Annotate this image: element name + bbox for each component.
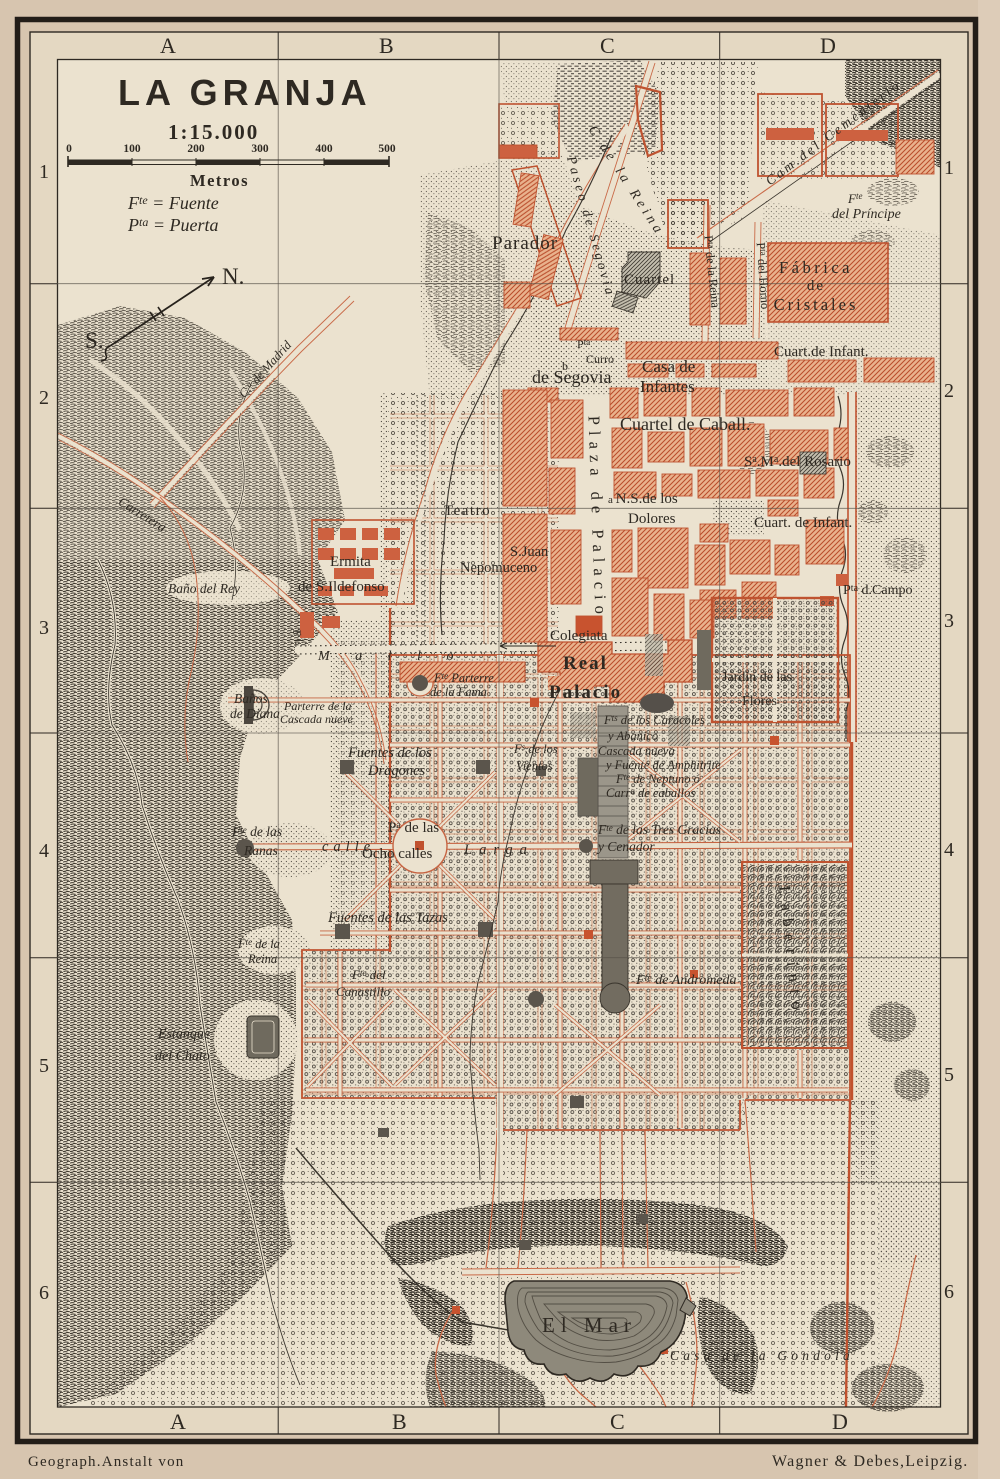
svg-text:Flores: Flores (742, 694, 777, 709)
svg-text:Metros: Metros (190, 171, 249, 190)
svg-text:D: D (832, 1409, 848, 1434)
svg-text:Jardin de las: Jardin de las (722, 670, 792, 685)
svg-text:Infantes: Infantes (640, 377, 695, 396)
svg-text:Cascada nueva: Cascada nueva (598, 744, 675, 758)
svg-text:de Diana: de Diana (230, 706, 280, 721)
svg-text:Fte de las Tres Gracias: Fte de las Tres Gracias (597, 822, 721, 837)
svg-text:del Príncipe: del Príncipe (832, 207, 901, 222)
svg-text:Vientos: Vientos (516, 759, 553, 773)
svg-text:Fts de los Caracoles: Fts de los Caracoles (603, 713, 705, 727)
svg-text:400: 400 (315, 143, 333, 155)
svg-text:Fte de las: Fte de las (231, 824, 282, 839)
svg-text:Fte del: Fte del (351, 967, 386, 982)
svg-text:a N.S.de los: a N.S.de los (608, 491, 678, 507)
svg-text:y Cenador: y Cenador (596, 839, 655, 854)
svg-text:300: 300 (251, 143, 269, 155)
svg-text:LA GRANJA: LA GRANJA (118, 72, 372, 113)
svg-text:Fte de la: Fte de la (237, 937, 280, 951)
svg-text:Palacio: Palacio (549, 682, 622, 703)
svg-text:y Abanico: y Abanico (606, 729, 658, 743)
svg-text:Larga: Larga (463, 842, 534, 858)
svg-text:Cuart. de Infant.: Cuart. de Infant. (754, 515, 852, 531)
svg-text:Fuentes de las Tazas: Fuentes de las Tazas (327, 910, 448, 926)
svg-text:200: 200 (187, 143, 205, 155)
svg-text:100: 100 (123, 143, 141, 155)
svg-text:de Segovia: de Segovia (532, 367, 611, 387)
svg-text:C: C (600, 33, 615, 58)
svg-text:6: 6 (39, 1282, 49, 1304)
svg-text:Dolores: Dolores (628, 511, 676, 527)
svg-text:1: 1 (39, 161, 49, 183)
svg-text:Parterre de la: Parterre de la (283, 699, 352, 713)
svg-text:2: 2 (39, 387, 49, 409)
svg-text:3: 3 (39, 617, 49, 639)
svg-text:S.Juan: S.Juan (510, 544, 549, 560)
svg-text:0: 0 (66, 143, 72, 155)
svg-text:A: A (160, 33, 176, 58)
svg-text:A: A (170, 1409, 186, 1434)
svg-text:Fuentes de los: Fuentes de los (347, 745, 432, 761)
svg-text:D: D (820, 33, 836, 58)
svg-text:Estanque: Estanque (157, 1027, 210, 1042)
svg-text:y Fuente de Amphitrite: y Fuente de Amphitrite (604, 758, 721, 772)
svg-text:Sa.Ma.del Rosario: Sa.Ma.del Rosario (744, 454, 851, 470)
svg-text:Cristales: Cristales (774, 295, 859, 314)
svg-text:6: 6 (944, 1281, 954, 1303)
svg-text:500: 500 (378, 143, 396, 155)
svg-text:Curro: Curro (586, 352, 614, 366)
svg-text:de: de (807, 278, 825, 294)
svg-text:Pa de las: Pa de las (388, 820, 439, 836)
svg-text:B: B (379, 33, 394, 58)
svg-text:Reina: Reina (247, 952, 277, 966)
svg-text:Geograph.Anstalt von: Geograph.Anstalt von (28, 1454, 184, 1470)
svg-text:C: C (610, 1409, 625, 1434)
svg-text:Dragones: Dragones (367, 763, 426, 779)
svg-text:2: 2 (944, 380, 954, 402)
svg-text:N.: N. (222, 264, 244, 289)
svg-text:del Chato: del Chato (155, 1049, 210, 1064)
svg-text:4: 4 (39, 840, 49, 862)
svg-text:5: 5 (944, 1064, 954, 1086)
svg-text:Ermita: Ermita (330, 554, 371, 570)
svg-text:5: 5 (39, 1055, 49, 1077)
svg-text:Teatro: Teatro (444, 503, 491, 519)
svg-text:Canastillo: Canastillo (336, 984, 391, 999)
svg-text:Baños: Baños (234, 691, 268, 706)
svg-text:Parador: Parador (492, 233, 558, 254)
svg-text:4: 4 (944, 839, 954, 861)
svg-text:Real: Real (563, 653, 608, 674)
svg-text:Nepomuceno: Nepomuceno (460, 560, 537, 576)
svg-text:de S.Ildefonso: de S.Ildefonso (298, 579, 385, 595)
svg-text:Casa de: Casa de (642, 357, 695, 376)
svg-text:Carra de caballos: Carra de caballos (606, 786, 695, 800)
svg-text:Cuartel: Cuartel (624, 272, 675, 288)
svg-text:B: B (392, 1409, 407, 1434)
svg-text:Cascada nueve: Cascada nueve (280, 712, 354, 726)
svg-text:Ocho calles: Ocho calles (362, 846, 433, 862)
svg-text:de la Fama: de la Fama (430, 685, 487, 699)
svg-text:Cuartel de Caball.: Cuartel de Caball. (620, 414, 750, 434)
svg-text:Casa de la Gondola: Casa de la Gondola (670, 1348, 854, 1363)
svg-text:Fs.de los: Fs.de los (513, 742, 558, 756)
svg-text:1:15.000: 1:15.000 (168, 120, 259, 144)
svg-text:Baño del Rey: Baño del Rey (168, 581, 240, 596)
svg-text:Wagner & Debes,Leipzig.: Wagner & Debes,Leipzig. (772, 1453, 969, 1470)
svg-text:3: 3 (944, 610, 954, 632)
svg-text:Ranas: Ranas (243, 843, 278, 858)
svg-text:Cuart.de Infant.: Cuart.de Infant. (774, 344, 869, 360)
svg-text:Colegiata: Colegiata (550, 628, 608, 644)
svg-text:El Mar: El Mar (542, 1313, 637, 1337)
svg-text:Fábrica: Fábrica (779, 258, 853, 277)
svg-text:1: 1 (944, 157, 954, 179)
svg-text:M a l l o: M a l l o (317, 649, 464, 664)
svg-text:S.: S. (85, 328, 104, 353)
